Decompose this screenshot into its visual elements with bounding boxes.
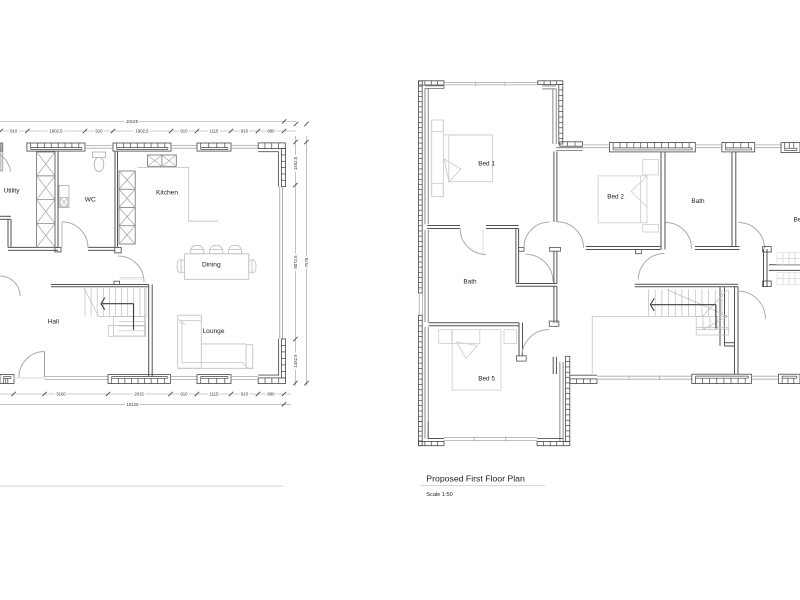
svg-text:WC: WC <box>85 197 96 204</box>
svg-text:7975: 7975 <box>304 257 309 267</box>
svg-text:910: 910 <box>95 129 103 134</box>
svg-text:Utility: Utility <box>3 188 20 195</box>
svg-text:910: 910 <box>180 129 188 134</box>
svg-text:Bath: Bath <box>463 279 477 286</box>
svg-text:910: 910 <box>241 129 249 134</box>
svg-text:1452,5: 1452,5 <box>293 354 298 368</box>
svg-text:910: 910 <box>10 129 18 134</box>
svg-text:Lounge: Lounge <box>202 328 224 335</box>
svg-text:Scale 1:50: Scale 1:50 <box>426 492 452 498</box>
svg-text:Bed 3: Bed 3 <box>794 216 800 223</box>
svg-text:Kitchen: Kitchen <box>156 190 178 197</box>
svg-text:Bed 2: Bed 2 <box>607 194 624 201</box>
svg-text:890: 890 <box>267 129 275 134</box>
svg-text:Bath: Bath <box>691 198 705 205</box>
svg-text:1115: 1115 <box>210 129 220 134</box>
svg-text:890: 890 <box>267 392 275 397</box>
svg-text:Bed 5: Bed 5 <box>478 375 495 382</box>
svg-text:910: 910 <box>241 392 249 397</box>
svg-text:1452,5: 1452,5 <box>293 156 298 170</box>
svg-text:5072,5: 5072,5 <box>293 255 298 269</box>
svg-text:3160: 3160 <box>56 392 66 397</box>
svg-text:2015: 2015 <box>134 392 144 397</box>
svg-text:10125: 10125 <box>126 119 139 124</box>
svg-text:1902,5: 1902,5 <box>49 129 63 134</box>
svg-text:10125: 10125 <box>127 402 140 407</box>
svg-text:Dining: Dining <box>202 261 221 268</box>
svg-text:Bed 1: Bed 1 <box>478 161 495 168</box>
svg-text:910: 910 <box>180 392 188 397</box>
svg-text:1115: 1115 <box>210 392 220 397</box>
svg-text:Hall: Hall <box>48 319 60 326</box>
svg-text:Proposed First Floor Plan: Proposed First Floor Plan <box>426 473 525 483</box>
svg-text:1902,5: 1902,5 <box>135 129 149 134</box>
